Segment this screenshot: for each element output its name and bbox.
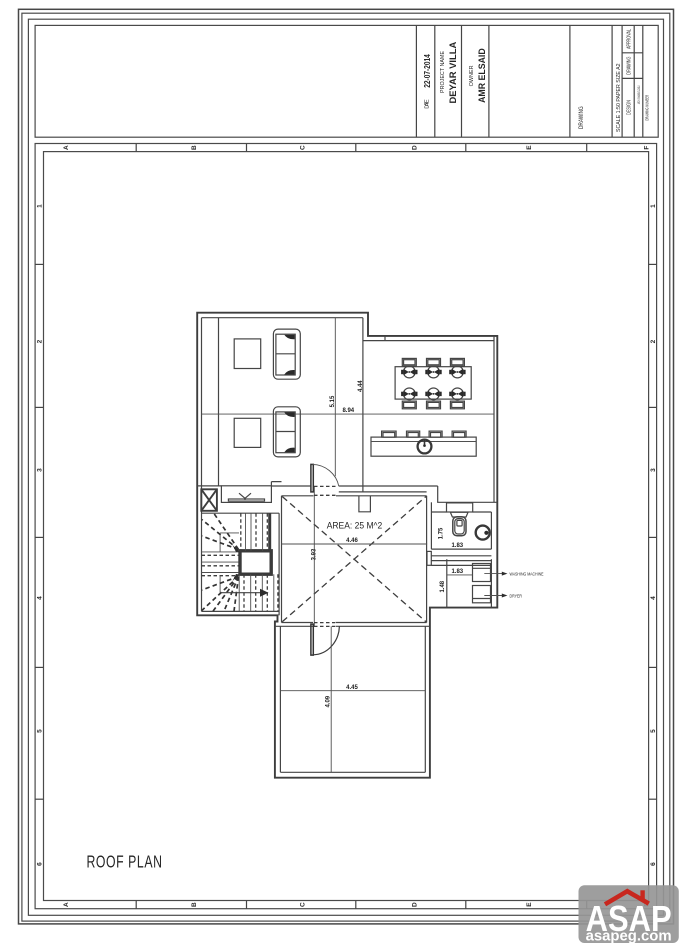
svg-text:1.48: 1.48 bbox=[440, 580, 446, 592]
svg-text:4.46: 4.46 bbox=[346, 538, 358, 544]
svg-text:2: 2 bbox=[37, 339, 44, 343]
svg-text:3: 3 bbox=[650, 468, 657, 472]
svg-text:OWNER: OWNER bbox=[469, 65, 475, 86]
svg-text:AREA: 25 M^2: AREA: 25 M^2 bbox=[327, 521, 383, 532]
svg-text:APPROVAL: APPROVAL bbox=[626, 29, 632, 49]
svg-text:DRAWING: DRAWING bbox=[626, 57, 632, 75]
svg-text:5: 5 bbox=[650, 729, 657, 733]
svg-text:E: E bbox=[526, 145, 533, 150]
svg-text:SCALE 1:50 PAPER SIZE A2: SCALE 1:50 PAPER SIZE A2 bbox=[616, 64, 622, 133]
svg-text:B: B bbox=[191, 902, 198, 907]
svg-text:asapeg.com: asapeg.com bbox=[586, 929, 672, 945]
svg-text:4.09: 4.09 bbox=[326, 695, 332, 707]
svg-text:A: A bbox=[63, 902, 70, 907]
svg-text:A: A bbox=[63, 145, 70, 150]
svg-text:1.83: 1.83 bbox=[451, 569, 463, 575]
svg-text:AMR ELSAID: AMR ELSAID bbox=[477, 48, 487, 103]
svg-text:D: D bbox=[412, 902, 419, 907]
svg-text:4: 4 bbox=[37, 596, 44, 600]
svg-text:PROJECT NAME: PROJECT NAME bbox=[440, 51, 446, 93]
svg-text:DEYAR VILLA: DEYAR VILLA bbox=[448, 41, 458, 103]
svg-text:D: D bbox=[412, 145, 419, 150]
svg-text:DESIGN: DESIGN bbox=[626, 100, 632, 115]
svg-text:B: B bbox=[191, 145, 198, 150]
svg-text:WASHING MACHINE: WASHING MACHINE bbox=[510, 571, 544, 576]
svg-text:4.45: 4.45 bbox=[346, 685, 358, 691]
svg-text:1.75: 1.75 bbox=[438, 527, 444, 539]
svg-text:6: 6 bbox=[650, 862, 657, 866]
svg-text:C: C bbox=[300, 145, 307, 150]
svg-text:DRAWING NUMBER: DRAWING NUMBER bbox=[644, 95, 649, 121]
svg-text:ROOF PLAN: ROOF PLAN bbox=[87, 852, 163, 872]
svg-text:1.83: 1.83 bbox=[451, 543, 463, 549]
svg-text:2: 2 bbox=[650, 339, 657, 343]
svg-text:DRAWING: DRAWING bbox=[579, 106, 585, 129]
svg-text:4: 4 bbox=[650, 596, 657, 600]
svg-text:6: 6 bbox=[37, 862, 44, 866]
svg-text:E: E bbox=[526, 902, 533, 907]
svg-text:5.15: 5.15 bbox=[330, 395, 336, 407]
svg-text:F: F bbox=[643, 146, 650, 150]
svg-text:C: C bbox=[300, 902, 307, 907]
svg-text:4.44: 4.44 bbox=[358, 380, 364, 392]
svg-text:3: 3 bbox=[37, 468, 44, 472]
svg-text:DATE: DATE bbox=[425, 99, 431, 109]
svg-text:1: 1 bbox=[37, 204, 44, 208]
svg-text:8.94: 8.94 bbox=[342, 408, 354, 414]
svg-text:5: 5 bbox=[37, 729, 44, 733]
svg-text:22-07-2014: 22-07-2014 bbox=[423, 54, 432, 88]
svg-text:1: 1 bbox=[650, 204, 657, 208]
svg-text:DRYER: DRYER bbox=[510, 593, 523, 598]
svg-text:ARCH. SHAIMA EL-DIGLI: ARCH. SHAIMA EL-DIGLI bbox=[637, 86, 641, 105]
